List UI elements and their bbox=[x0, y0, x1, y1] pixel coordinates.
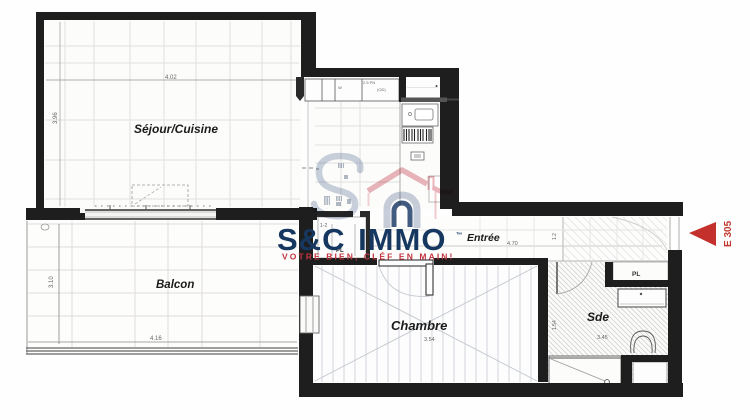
svg-text:2.5 PN: 2.5 PN bbox=[363, 80, 375, 85]
svg-text:™: ™ bbox=[456, 232, 463, 239]
svg-text:1.54: 1.54 bbox=[552, 320, 558, 330]
svg-text:W: W bbox=[338, 85, 342, 90]
svg-text:3.45: 3.45 bbox=[597, 335, 608, 341]
svg-text:PL: PL bbox=[632, 271, 640, 278]
svg-text:Chambre: Chambre bbox=[391, 318, 447, 333]
svg-text:VOTRE BIEN, CLÉF EN MAIN!: VOTRE BIEN, CLÉF EN MAIN! bbox=[282, 252, 454, 262]
svg-text:Sde: Sde bbox=[587, 310, 609, 324]
svg-text:4.02: 4.02 bbox=[165, 75, 177, 81]
svg-text:3.96: 3.96 bbox=[53, 112, 59, 124]
svg-text:Entrée: Entrée bbox=[467, 232, 500, 244]
svg-text:3.54: 3.54 bbox=[424, 337, 435, 343]
svg-text:Balcon: Balcon bbox=[156, 279, 194, 291]
svg-text:(OD): (OD) bbox=[377, 87, 386, 92]
svg-text:Séjour/Cuisine: Séjour/Cuisine bbox=[134, 122, 218, 136]
svg-text:4.16: 4.16 bbox=[150, 336, 162, 342]
svg-text:1.2: 1.2 bbox=[552, 233, 558, 240]
svg-text:3.10: 3.10 bbox=[49, 276, 55, 288]
svg-text:4.70: 4.70 bbox=[507, 241, 518, 247]
svg-text:E 305: E 305 bbox=[723, 220, 734, 247]
